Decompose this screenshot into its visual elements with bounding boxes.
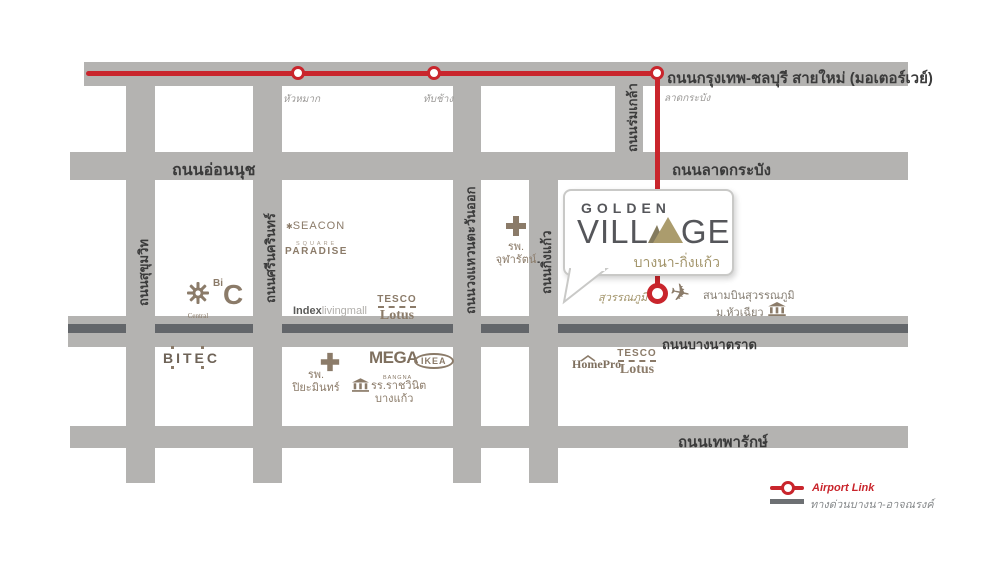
motorway-label: ถนนกรุงเทพ-ชลบุรี สายใหม่ (มอเตอร์เวย์) xyxy=(667,66,933,90)
brand-village: VILL GE xyxy=(577,215,731,248)
romklao-label: ถนนร่มเกล้า xyxy=(622,86,643,152)
central-logo: Central xyxy=(183,281,213,323)
homepro-logo: HomePro xyxy=(572,355,621,373)
mountain-icon xyxy=(647,215,683,248)
tesco-lotus-logo-2: TESCO Lotus xyxy=(616,349,658,377)
bangnatrad-label: ถนนบางนาตราด xyxy=(662,334,757,355)
legend-expressway-label: ทางด่วนบางนา-อาจณรงค์ xyxy=(810,495,934,513)
road-kingkaew xyxy=(529,152,558,483)
seacon-name: SEACON xyxy=(293,220,345,232)
bitec-dot xyxy=(171,366,174,369)
paradise-logo: PARADISE xyxy=(285,246,348,257)
expressway-stripe xyxy=(68,324,908,333)
homepro-roof-icon xyxy=(580,349,596,367)
central-icon xyxy=(183,281,213,305)
bitec-logo: BITEC xyxy=(163,350,220,368)
seacon-square-logo: ✱SEACON SQUARE xyxy=(286,217,345,249)
station-tabchang-icon xyxy=(427,66,441,80)
station-huamak-label: หัวหมาก xyxy=(283,92,320,107)
mega-text: MEGA xyxy=(369,348,418,367)
bitec-dot xyxy=(171,346,174,349)
index-livingmall-logo: Indexlivingmall xyxy=(293,305,367,317)
piyamin-label: รพ. ปิยะมินทร์ xyxy=(288,369,344,394)
ringroad-label: ถนนวงแหวนตะวันออก xyxy=(460,165,481,335)
mega-bangna-logo: MEGA BANGNA xyxy=(369,349,418,383)
lotus-text: Lotus xyxy=(376,309,418,323)
callout-tail xyxy=(560,268,612,311)
tesco-text: TESCO xyxy=(376,295,418,305)
station-latkrabang-label: ลาดกระบัง xyxy=(664,91,710,106)
bitec-dot xyxy=(201,366,204,369)
chularat-cross-icon xyxy=(504,214,528,238)
onnut-label: ถนนอ่อนนุช xyxy=(172,158,256,183)
latkrabang-label: ถนนลาดกระบัง xyxy=(672,158,771,182)
central-label: Central xyxy=(188,312,209,320)
bigc-c: C xyxy=(223,279,243,310)
legend-expressway-line xyxy=(770,499,804,504)
road-thepharak-band xyxy=(70,426,908,448)
sukhumvit-label: ถนนสุขุมวิท xyxy=(133,235,154,311)
legend-airport-link-ring xyxy=(781,481,795,495)
ratchawinit-school-label: รร.ราชวินิต บางแก้ว xyxy=(371,380,426,405)
index-light: livingmall xyxy=(322,305,367,317)
huachiew-label: ม.หัวเฉียว xyxy=(716,303,764,321)
seacon-star-icon: ✱ xyxy=(286,222,293,231)
station-tabchang-label: ทับช้าง xyxy=(423,92,453,107)
tesco-lotus-logo-1: TESCO Lotus xyxy=(376,295,418,323)
location-map: ถนนกรุงเทพ-ชลบุรี สายใหม่ (มอเตอร์เวย์) … xyxy=(0,0,1000,568)
ikea-logo: IKEA xyxy=(414,351,454,369)
huachiew-building-icon xyxy=(768,302,786,321)
airplane-icon: ✈ xyxy=(667,277,693,310)
chularat-label: รพ. จุฬารัตน์ xyxy=(488,241,544,266)
legend-airport-link-label: Airport Link xyxy=(812,482,874,494)
bigc-logo: BiC xyxy=(213,278,243,311)
station-huamak-icon xyxy=(291,66,305,80)
bitec-text: BITEC xyxy=(163,350,220,366)
station-latkrabang-icon xyxy=(650,66,664,80)
bigc-bi: Bi xyxy=(213,278,223,289)
golden-village-callout: GOLDEN VILL GE บางนา-กิ่งแก้ว xyxy=(563,189,734,276)
station-suvarnabhumi-icon xyxy=(647,283,668,304)
airport-link-line-horizontal xyxy=(86,71,658,76)
srinagarindra-label: ถนนศรีนครินทร์ xyxy=(260,205,281,311)
school-building-icon xyxy=(352,378,369,397)
bitec-dot xyxy=(201,346,204,349)
brand-subtitle: บางนา-กิ่งแก้ว xyxy=(634,252,720,274)
index-bold: Index xyxy=(293,305,322,317)
thepharak-label: ถนนเทพารักษ์ xyxy=(678,430,768,454)
